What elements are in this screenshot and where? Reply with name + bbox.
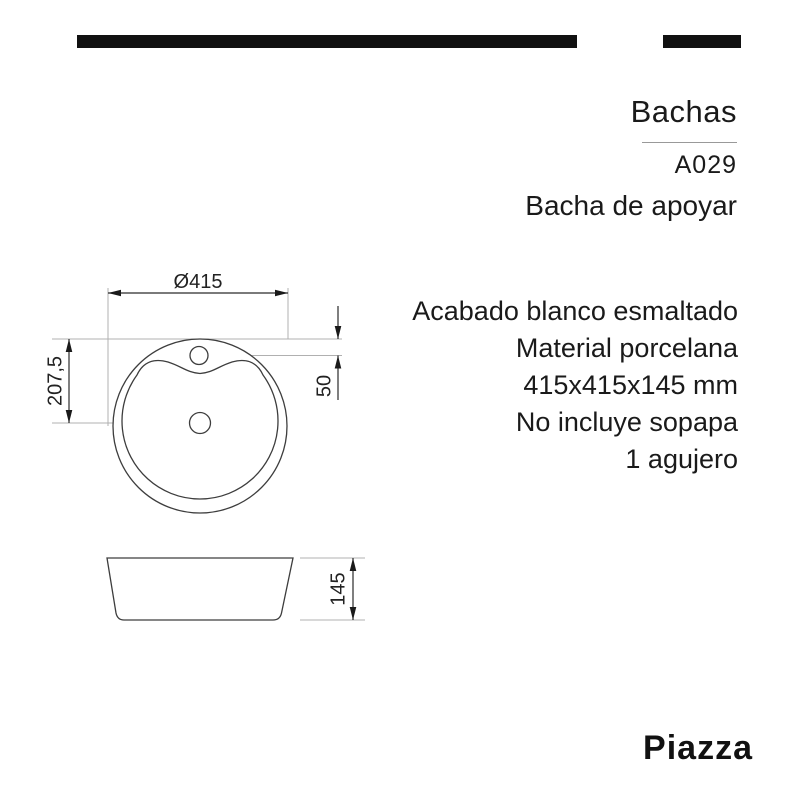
dim-label-height: 145 (327, 572, 349, 605)
page-title: Bachas (631, 96, 737, 127)
drain-hole (190, 413, 211, 434)
faucet-hole (190, 347, 208, 365)
technical-drawing: Ø415 207,5 50 145 (0, 0, 400, 680)
arrow-down-icon (335, 326, 342, 339)
arrow-down-icon (66, 410, 73, 423)
sink-basin-outline (122, 361, 278, 499)
arrow-left-icon (108, 290, 121, 297)
datasheet-page: Bachas A029 Bacha de apoyar Ø415 207,5 5… (0, 0, 800, 800)
header-bar-long (77, 35, 577, 48)
arrow-up-icon (335, 356, 342, 369)
arrow-down-icon (350, 607, 357, 620)
brand-logo: Piazza (643, 731, 753, 765)
product-name: Bacha de apoyar (525, 192, 737, 220)
sink-side-profile (107, 558, 293, 620)
arrow-right-icon (275, 290, 288, 297)
specs-list: Acabado blanco esmaltado Material porcel… (412, 293, 738, 478)
arrow-up-icon (66, 339, 73, 352)
product-code: A029 (675, 153, 737, 178)
dim-label-offset: 207,5 (44, 356, 66, 406)
spec-line-drain: No incluye sopapa (412, 404, 738, 441)
title-divider (642, 142, 737, 143)
spec-line-holes: 1 agujero (412, 441, 738, 478)
sink-outer-rim (113, 339, 287, 513)
dim-label-faucet: 50 (313, 375, 335, 397)
dim-label-diameter: Ø415 (174, 271, 223, 293)
spec-line-material: Material porcelana (412, 330, 738, 367)
spec-line-size: 415x415x145 mm (412, 367, 738, 404)
arrow-up-icon (350, 558, 357, 571)
spec-line-finish: Acabado blanco esmaltado (412, 293, 738, 330)
header-bar-short (663, 35, 741, 48)
